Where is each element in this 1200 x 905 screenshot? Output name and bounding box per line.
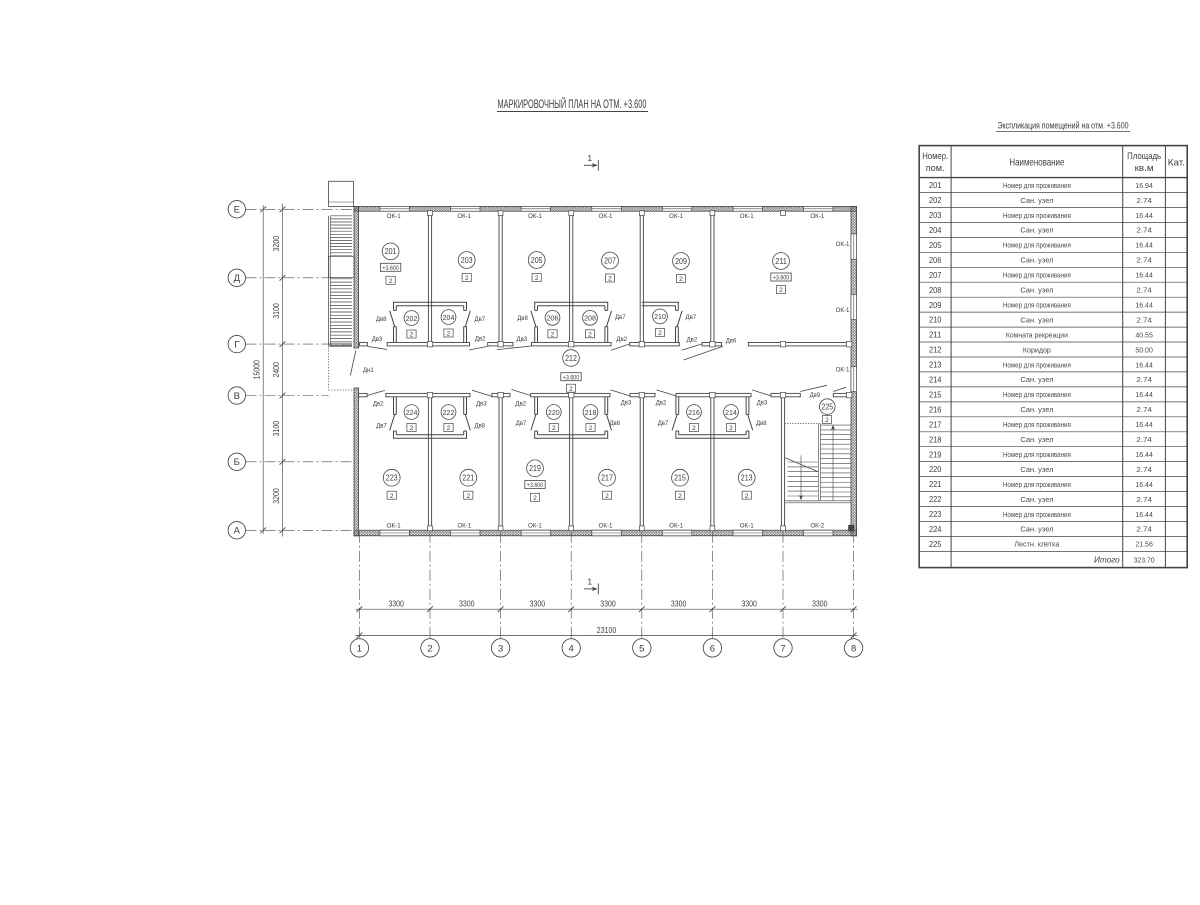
svg-text:206: 206 xyxy=(929,255,942,265)
svg-text:Кат.: Кат. xyxy=(1168,157,1185,167)
svg-text:2.74: 2.74 xyxy=(1136,435,1152,444)
svg-text:Дв6: Дв6 xyxy=(726,338,737,344)
svg-text:2: 2 xyxy=(589,425,593,432)
svg-text:Номер для проживания: Номер для проживания xyxy=(1003,271,1071,280)
svg-text:16.44: 16.44 xyxy=(1135,211,1153,220)
svg-text:217: 217 xyxy=(929,419,942,429)
svg-text:+3.600: +3.600 xyxy=(773,275,790,282)
svg-text:Дв8: Дв8 xyxy=(609,421,620,427)
svg-text:225: 225 xyxy=(821,402,833,411)
svg-text:А: А xyxy=(234,526,241,537)
svg-text:218: 218 xyxy=(585,408,597,417)
svg-text:3100: 3100 xyxy=(272,303,281,319)
svg-text:Номер для проживания: Номер для проживания xyxy=(1003,420,1071,429)
svg-text:224: 224 xyxy=(929,524,942,534)
svg-text:ОК-1: ОК-1 xyxy=(740,213,754,220)
svg-text:Дн1: Дн1 xyxy=(363,368,374,374)
svg-text:Дв7: Дв7 xyxy=(516,421,527,427)
svg-text:209: 209 xyxy=(675,257,687,266)
svg-text:221: 221 xyxy=(462,474,474,483)
svg-text:Сан. узел: Сан. узел xyxy=(1020,256,1053,265)
svg-text:5: 5 xyxy=(639,643,644,654)
svg-text:Сан. узел: Сан. узел xyxy=(1020,525,1053,534)
svg-text:203: 203 xyxy=(929,210,942,220)
svg-text:223: 223 xyxy=(386,474,398,483)
svg-text:Дв7: Дв7 xyxy=(615,315,626,321)
svg-text:225: 225 xyxy=(929,539,942,549)
svg-text:4: 4 xyxy=(569,643,574,654)
svg-text:3100: 3100 xyxy=(272,420,281,436)
svg-text:ОК-1: ОК-1 xyxy=(387,522,401,529)
svg-text:Дв3: Дв3 xyxy=(476,402,487,408)
svg-text:208: 208 xyxy=(929,285,942,295)
svg-text:206: 206 xyxy=(547,314,559,323)
svg-text:Дв8: Дв8 xyxy=(475,423,486,429)
svg-text:Дв9: Дв9 xyxy=(810,393,821,399)
svg-text:Дв8: Дв8 xyxy=(376,317,387,323)
svg-text:2: 2 xyxy=(729,425,733,432)
svg-text:323.70: 323.70 xyxy=(1134,556,1155,565)
svg-text:Номер для проживания: Номер для проживания xyxy=(1003,211,1071,220)
svg-text:16.44: 16.44 xyxy=(1135,480,1153,489)
svg-text:2.74: 2.74 xyxy=(1136,495,1152,504)
svg-text:211: 211 xyxy=(929,330,942,340)
svg-text:Дв2: Дв2 xyxy=(687,337,698,343)
svg-text:Сан. узел: Сан. узел xyxy=(1020,196,1053,205)
svg-text:ОК-1: ОК-1 xyxy=(836,307,850,314)
svg-text:21.56: 21.56 xyxy=(1135,540,1153,549)
svg-text:212: 212 xyxy=(929,345,942,355)
svg-text:ОК-1: ОК-1 xyxy=(387,213,401,220)
svg-text:3200: 3200 xyxy=(272,235,281,251)
svg-text:221: 221 xyxy=(929,479,942,489)
svg-text:Дв2: Дв2 xyxy=(373,402,384,408)
svg-text:205: 205 xyxy=(531,256,543,265)
svg-text:40.55: 40.55 xyxy=(1135,330,1153,339)
svg-text:ОК-1: ОК-1 xyxy=(528,213,542,220)
svg-text:Дв3: Дв3 xyxy=(757,401,768,407)
svg-text:2.74: 2.74 xyxy=(1136,375,1152,384)
svg-text:Дв7: Дв7 xyxy=(658,421,669,427)
svg-text:7: 7 xyxy=(780,643,785,654)
svg-text:203: 203 xyxy=(461,256,473,265)
svg-text:Сан. узел: Сан. узел xyxy=(1020,375,1053,384)
svg-text:3: 3 xyxy=(498,643,503,654)
svg-text:207: 207 xyxy=(604,256,616,265)
svg-text:207: 207 xyxy=(929,270,942,280)
svg-text:Коридор: Коридор xyxy=(1023,345,1051,354)
svg-text:Номер для проживания: Номер для проживания xyxy=(1003,241,1071,250)
svg-text:2: 2 xyxy=(427,643,432,654)
svg-text:Номер для проживания: Номер для проживания xyxy=(1003,360,1071,369)
svg-text:216: 216 xyxy=(688,408,700,417)
svg-text:ОК-1: ОК-1 xyxy=(810,213,824,220)
svg-text:16.44: 16.44 xyxy=(1135,390,1153,399)
svg-text:МАРКИРОВОЧНЫЙ ПЛАН НА ОТМ. +3.: МАРКИРОВОЧНЫЙ ПЛАН НА ОТМ. +3.600 xyxy=(498,97,647,111)
svg-text:ОК-1: ОК-1 xyxy=(740,522,754,529)
svg-text:Дв3: Дв3 xyxy=(372,337,383,343)
svg-text:Дв3: Дв3 xyxy=(517,337,528,343)
svg-text:2: 2 xyxy=(678,493,682,500)
svg-text:Дв7: Дв7 xyxy=(686,315,697,321)
svg-text:220: 220 xyxy=(548,408,560,417)
svg-text:2: 2 xyxy=(410,332,414,339)
svg-text:16.44: 16.44 xyxy=(1135,420,1153,429)
svg-text:Сан. узел: Сан. узел xyxy=(1020,286,1053,295)
svg-text:2: 2 xyxy=(569,386,573,393)
svg-text:Сан. узел: Сан. узел xyxy=(1020,405,1053,414)
svg-text:ОК-1: ОК-1 xyxy=(457,213,471,220)
svg-text:ОК-1: ОК-1 xyxy=(836,241,850,248)
svg-text:2: 2 xyxy=(779,287,783,294)
svg-text:Комната рекреации: Комната рекреации xyxy=(1006,330,1068,339)
svg-text:Сан. узел: Сан. узел xyxy=(1020,465,1053,474)
svg-text:Г: Г xyxy=(234,340,239,351)
svg-text:204: 204 xyxy=(443,313,455,322)
svg-text:3300: 3300 xyxy=(671,599,687,608)
svg-text:Площадь: Площадь xyxy=(1127,151,1161,161)
svg-text:204: 204 xyxy=(929,225,942,235)
svg-text:Е: Е xyxy=(234,205,240,216)
svg-text:1: 1 xyxy=(357,643,362,654)
svg-text:205: 205 xyxy=(929,240,942,250)
svg-text:2: 2 xyxy=(410,425,414,432)
svg-text:+3.600: +3.600 xyxy=(563,374,580,381)
svg-text:3200: 3200 xyxy=(272,488,281,504)
svg-text:Дв8: Дв8 xyxy=(756,421,767,427)
svg-text:Номер для проживания: Номер для проживания xyxy=(1003,450,1071,459)
svg-text:202: 202 xyxy=(406,314,418,323)
svg-text:2.74: 2.74 xyxy=(1136,196,1152,205)
svg-text:2: 2 xyxy=(608,276,612,283)
svg-text:2: 2 xyxy=(692,425,696,432)
svg-text:Сан. узел: Сан. узел xyxy=(1020,435,1053,444)
svg-text:16.44: 16.44 xyxy=(1135,360,1153,369)
svg-text:ОК-1: ОК-1 xyxy=(836,367,850,374)
svg-text:Сан. узел: Сан. узел xyxy=(1020,315,1053,324)
svg-text:211: 211 xyxy=(775,257,787,266)
svg-text:2: 2 xyxy=(551,331,555,338)
svg-text:16.44: 16.44 xyxy=(1135,241,1153,250)
svg-text:2.74: 2.74 xyxy=(1136,256,1152,265)
svg-text:ОК-1: ОК-1 xyxy=(599,213,613,220)
svg-text:219: 219 xyxy=(529,464,541,473)
svg-text:16.94: 16.94 xyxy=(1135,181,1153,190)
svg-text:2.74: 2.74 xyxy=(1136,405,1152,414)
svg-text:2: 2 xyxy=(679,276,683,283)
svg-text:пом.: пом. xyxy=(926,163,945,173)
svg-text:1: 1 xyxy=(587,153,592,163)
svg-text:217: 217 xyxy=(601,474,613,483)
svg-text:222: 222 xyxy=(929,494,942,504)
svg-text:3300: 3300 xyxy=(388,599,404,608)
svg-text:224: 224 xyxy=(406,408,418,417)
svg-text:2.74: 2.74 xyxy=(1136,465,1152,474)
svg-text:2: 2 xyxy=(447,425,451,432)
svg-text:Дв2: Дв2 xyxy=(515,402,526,408)
svg-text:Дв2: Дв2 xyxy=(656,401,667,407)
svg-text:201: 201 xyxy=(385,247,397,256)
svg-text:2: 2 xyxy=(465,275,469,282)
svg-text:+3.600: +3.600 xyxy=(527,482,544,489)
svg-text:6: 6 xyxy=(710,643,715,654)
svg-text:Экспликация помещений на отм.: Экспликация помещений на отм. +3.600 xyxy=(998,120,1129,130)
svg-text:2: 2 xyxy=(825,417,829,424)
svg-text:2: 2 xyxy=(533,495,537,502)
svg-text:Б: Б xyxy=(234,457,240,468)
svg-text:Номер для проживания: Номер для проживания xyxy=(1003,510,1071,519)
svg-text:214: 214 xyxy=(725,408,737,417)
svg-text:214: 214 xyxy=(929,375,942,385)
svg-text:223: 223 xyxy=(929,509,942,519)
svg-text:2: 2 xyxy=(552,425,556,432)
svg-text:16.44: 16.44 xyxy=(1135,301,1153,310)
svg-text:50.00: 50.00 xyxy=(1135,345,1153,354)
svg-text:кв.м: кв.м xyxy=(1135,163,1154,173)
svg-text:210: 210 xyxy=(654,312,666,321)
svg-text:2.74: 2.74 xyxy=(1136,525,1152,534)
svg-text:ОК-2: ОК-2 xyxy=(810,522,824,529)
svg-text:2400: 2400 xyxy=(272,361,281,377)
svg-text:215: 215 xyxy=(929,390,942,400)
svg-text:2: 2 xyxy=(390,493,394,500)
svg-text:Номер для проживания: Номер для проживания xyxy=(1003,480,1071,489)
svg-text:Дв3: Дв3 xyxy=(621,401,632,407)
svg-text:15000: 15000 xyxy=(253,359,262,379)
svg-text:ОК-1: ОК-1 xyxy=(528,522,542,529)
svg-text:Сан. узел: Сан. узел xyxy=(1020,226,1053,235)
svg-text:212: 212 xyxy=(565,354,577,363)
svg-text:2: 2 xyxy=(466,493,470,500)
svg-text:Сан. узел: Сан. узел xyxy=(1020,495,1053,504)
svg-text:209: 209 xyxy=(929,300,942,310)
svg-text:Дв2: Дв2 xyxy=(616,337,627,343)
svg-text:3300: 3300 xyxy=(741,599,757,608)
svg-text:2: 2 xyxy=(389,278,393,285)
svg-text:ОК-1: ОК-1 xyxy=(457,522,471,529)
svg-text:2.74: 2.74 xyxy=(1136,286,1152,295)
svg-text:2: 2 xyxy=(745,493,749,500)
svg-text:3300: 3300 xyxy=(600,599,616,608)
svg-text:ОК-1: ОК-1 xyxy=(669,522,683,529)
svg-text:2.74: 2.74 xyxy=(1136,226,1152,235)
svg-text:Дв7: Дв7 xyxy=(376,423,387,429)
svg-text:215: 215 xyxy=(674,474,686,483)
svg-text:16.44: 16.44 xyxy=(1135,510,1153,519)
svg-text:3300: 3300 xyxy=(530,599,546,608)
svg-text:Дв2: Дв2 xyxy=(475,336,486,342)
svg-text:В: В xyxy=(234,391,240,402)
svg-text:2: 2 xyxy=(658,330,662,337)
svg-text:Дв8: Дв8 xyxy=(517,316,528,322)
svg-text:2.74: 2.74 xyxy=(1136,315,1152,324)
svg-text:213: 213 xyxy=(741,474,753,483)
svg-text:Номер для проживания: Номер для проживания xyxy=(1003,181,1071,190)
svg-text:1: 1 xyxy=(587,576,592,586)
svg-text:Лестн. клетка: Лестн. клетка xyxy=(1014,540,1060,549)
svg-text:Дв7: Дв7 xyxy=(475,317,486,323)
svg-text:Итого: Итого xyxy=(1094,556,1120,565)
svg-text:ОК-1: ОК-1 xyxy=(669,213,683,220)
svg-text:Номер для проживания: Номер для проживания xyxy=(1003,390,1071,399)
svg-text:+3.600: +3.600 xyxy=(382,265,399,272)
svg-text:16.44: 16.44 xyxy=(1135,450,1153,459)
svg-text:208: 208 xyxy=(584,314,596,323)
svg-text:219: 219 xyxy=(929,449,942,459)
svg-text:2: 2 xyxy=(605,493,609,500)
svg-text:210: 210 xyxy=(929,315,942,325)
svg-text:220: 220 xyxy=(929,464,942,474)
svg-text:202: 202 xyxy=(929,195,942,205)
svg-text:3300: 3300 xyxy=(812,599,828,608)
svg-text:Наименование: Наименование xyxy=(1009,157,1064,168)
svg-text:16.44: 16.44 xyxy=(1135,271,1153,280)
svg-text:218: 218 xyxy=(929,434,942,444)
svg-text:Номер для проживания: Номер для проживания xyxy=(1003,301,1071,310)
svg-text:216: 216 xyxy=(929,404,942,414)
svg-text:3300: 3300 xyxy=(459,599,475,608)
svg-text:Номер.: Номер. xyxy=(922,151,948,161)
svg-text:201: 201 xyxy=(929,180,942,190)
svg-text:213: 213 xyxy=(929,360,942,370)
svg-text:8: 8 xyxy=(851,643,856,654)
svg-text:222: 222 xyxy=(443,408,455,417)
svg-text:ОК-1: ОК-1 xyxy=(599,522,613,529)
svg-text:Д: Д xyxy=(234,273,241,284)
svg-text:23100: 23100 xyxy=(597,626,617,635)
svg-text:2: 2 xyxy=(447,331,451,338)
svg-text:2: 2 xyxy=(535,275,539,282)
svg-text:2: 2 xyxy=(588,331,592,338)
